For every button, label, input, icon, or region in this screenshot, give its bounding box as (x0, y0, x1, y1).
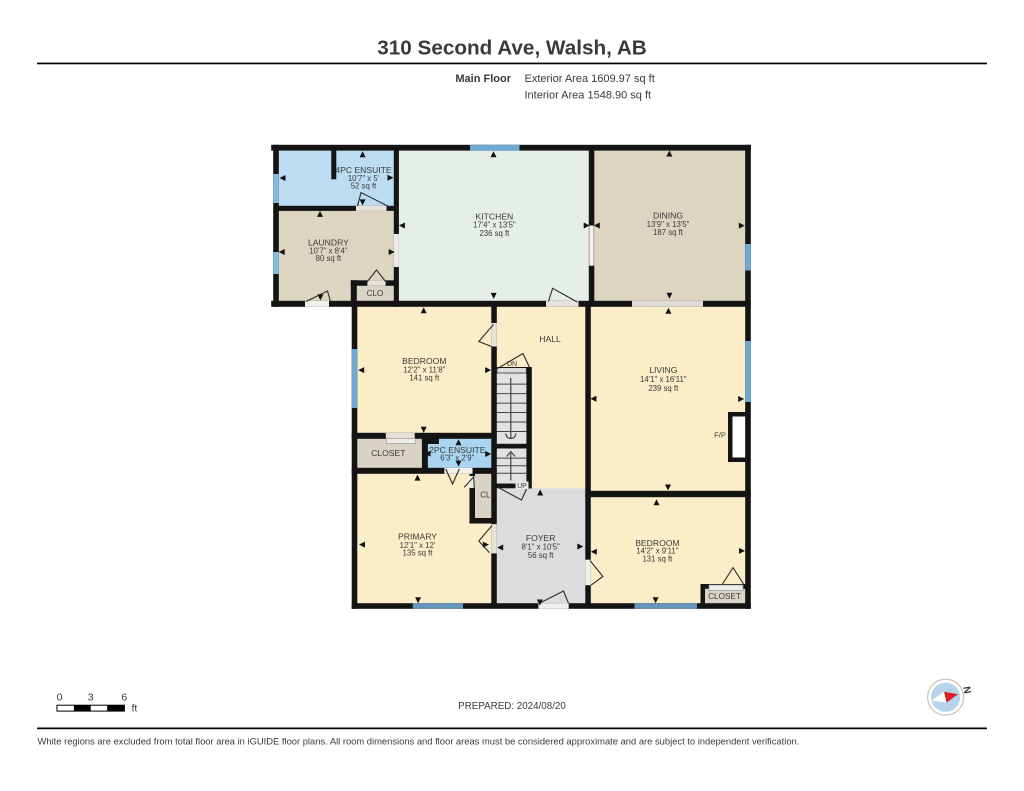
svg-text:Main Floor: Main Floor (455, 73, 511, 85)
svg-text:HALL: HALL (539, 334, 561, 344)
svg-text:135 sq ft: 135 sq ft (403, 548, 434, 557)
svg-text:Exterior Area 1609.97 sq ft: Exterior Area 1609.97 sq ft (525, 73, 655, 85)
svg-text:CLOSET: CLOSET (371, 448, 406, 458)
svg-text:3: 3 (88, 692, 94, 704)
svg-text:6: 6 (121, 692, 127, 704)
svg-text:14'1" x 16'11": 14'1" x 16'11" (640, 375, 687, 384)
svg-text:White regions are excluded fro: White regions are excluded from total fl… (38, 736, 800, 747)
svg-text:0: 0 (57, 692, 63, 704)
svg-text:LIVING: LIVING (649, 365, 677, 375)
svg-text:80 sq ft: 80 sq ft (316, 254, 342, 263)
svg-text:236 sq ft: 236 sq ft (479, 229, 510, 238)
svg-text:DN: DN (507, 361, 517, 368)
svg-text:CLOSET: CLOSET (708, 592, 741, 601)
svg-text:ft: ft (132, 703, 138, 715)
svg-text:6'3" x 2'9": 6'3" x 2'9" (440, 454, 474, 463)
svg-text:52 sq ft: 52 sq ft (351, 182, 377, 191)
svg-text:239 sq ft: 239 sq ft (648, 384, 679, 393)
svg-text:UP: UP (517, 483, 527, 490)
svg-text:F/P: F/P (714, 430, 726, 439)
svg-text:141 sq ft: 141 sq ft (409, 374, 440, 383)
svg-text:CLO: CLO (367, 289, 384, 298)
svg-text:Interior Area 1548.90 sq ft: Interior Area 1548.90 sq ft (525, 90, 652, 102)
svg-text:310 Second Ave, Walsh, AB: 310 Second Ave, Walsh, AB (377, 36, 646, 59)
svg-text:CL: CL (480, 491, 491, 500)
svg-text:FOYER: FOYER (526, 533, 556, 543)
svg-text:131 sq ft: 131 sq ft (642, 555, 673, 564)
svg-text:187 sq ft: 187 sq ft (653, 228, 684, 237)
svg-text:PREPARED: 2024/08/20: PREPARED: 2024/08/20 (458, 701, 566, 712)
svg-text:56 sq ft: 56 sq ft (528, 551, 554, 560)
